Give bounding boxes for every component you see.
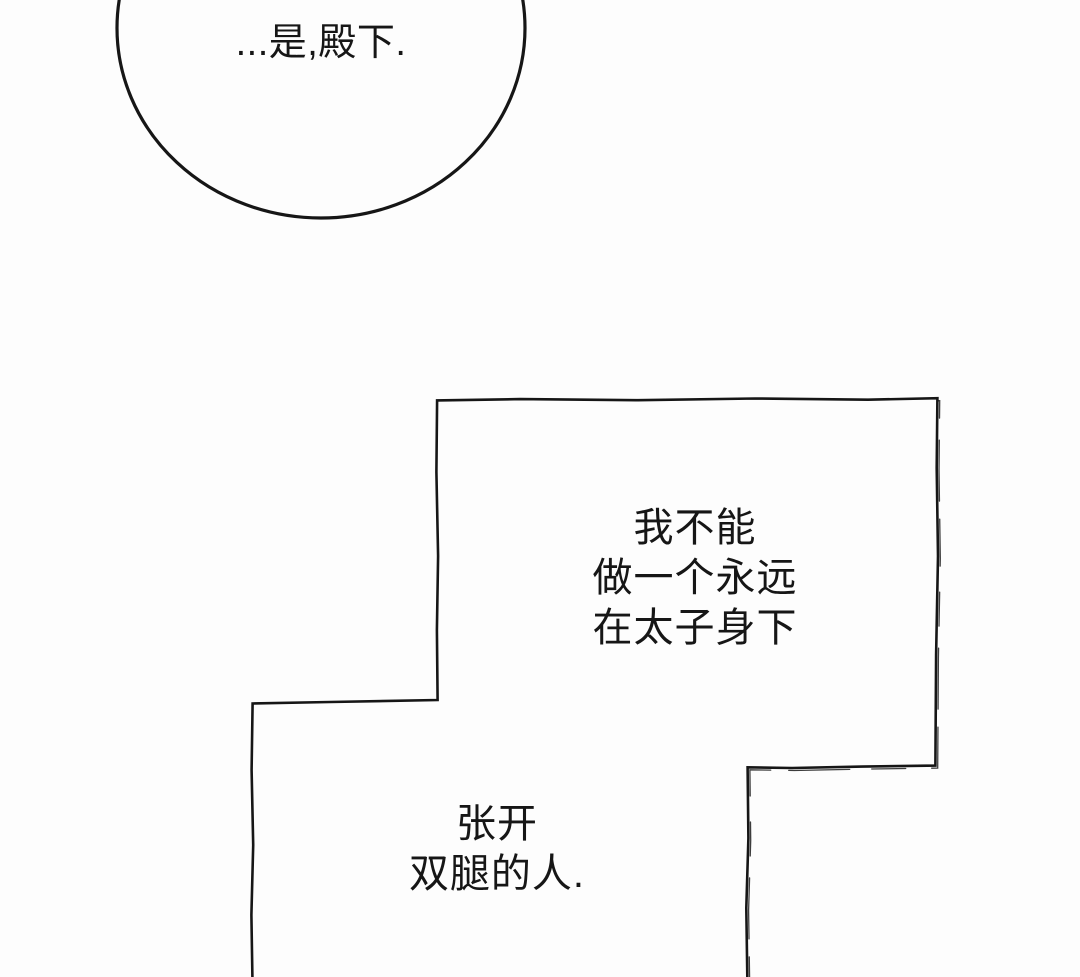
narration-line: 我不能 bbox=[445, 503, 945, 553]
narration-upper-block: 我不能 做一个永远 在太子身下 bbox=[445, 503, 945, 653]
comic-page: ...是,殿下. 我不能 做一个永远 在太子身下 张开 双腿的人. bbox=[0, 0, 1080, 977]
narration-line: 做一个永远 bbox=[445, 553, 945, 603]
narration-line: 张开 bbox=[247, 799, 747, 849]
speech-bubble-text: ...是,殿下. bbox=[121, 21, 521, 65]
narration-line: 双腿的人. bbox=[247, 849, 747, 899]
narration-lower-block: 张开 双腿的人. bbox=[247, 799, 747, 899]
narration-line: 在太子身下 bbox=[445, 603, 945, 653]
